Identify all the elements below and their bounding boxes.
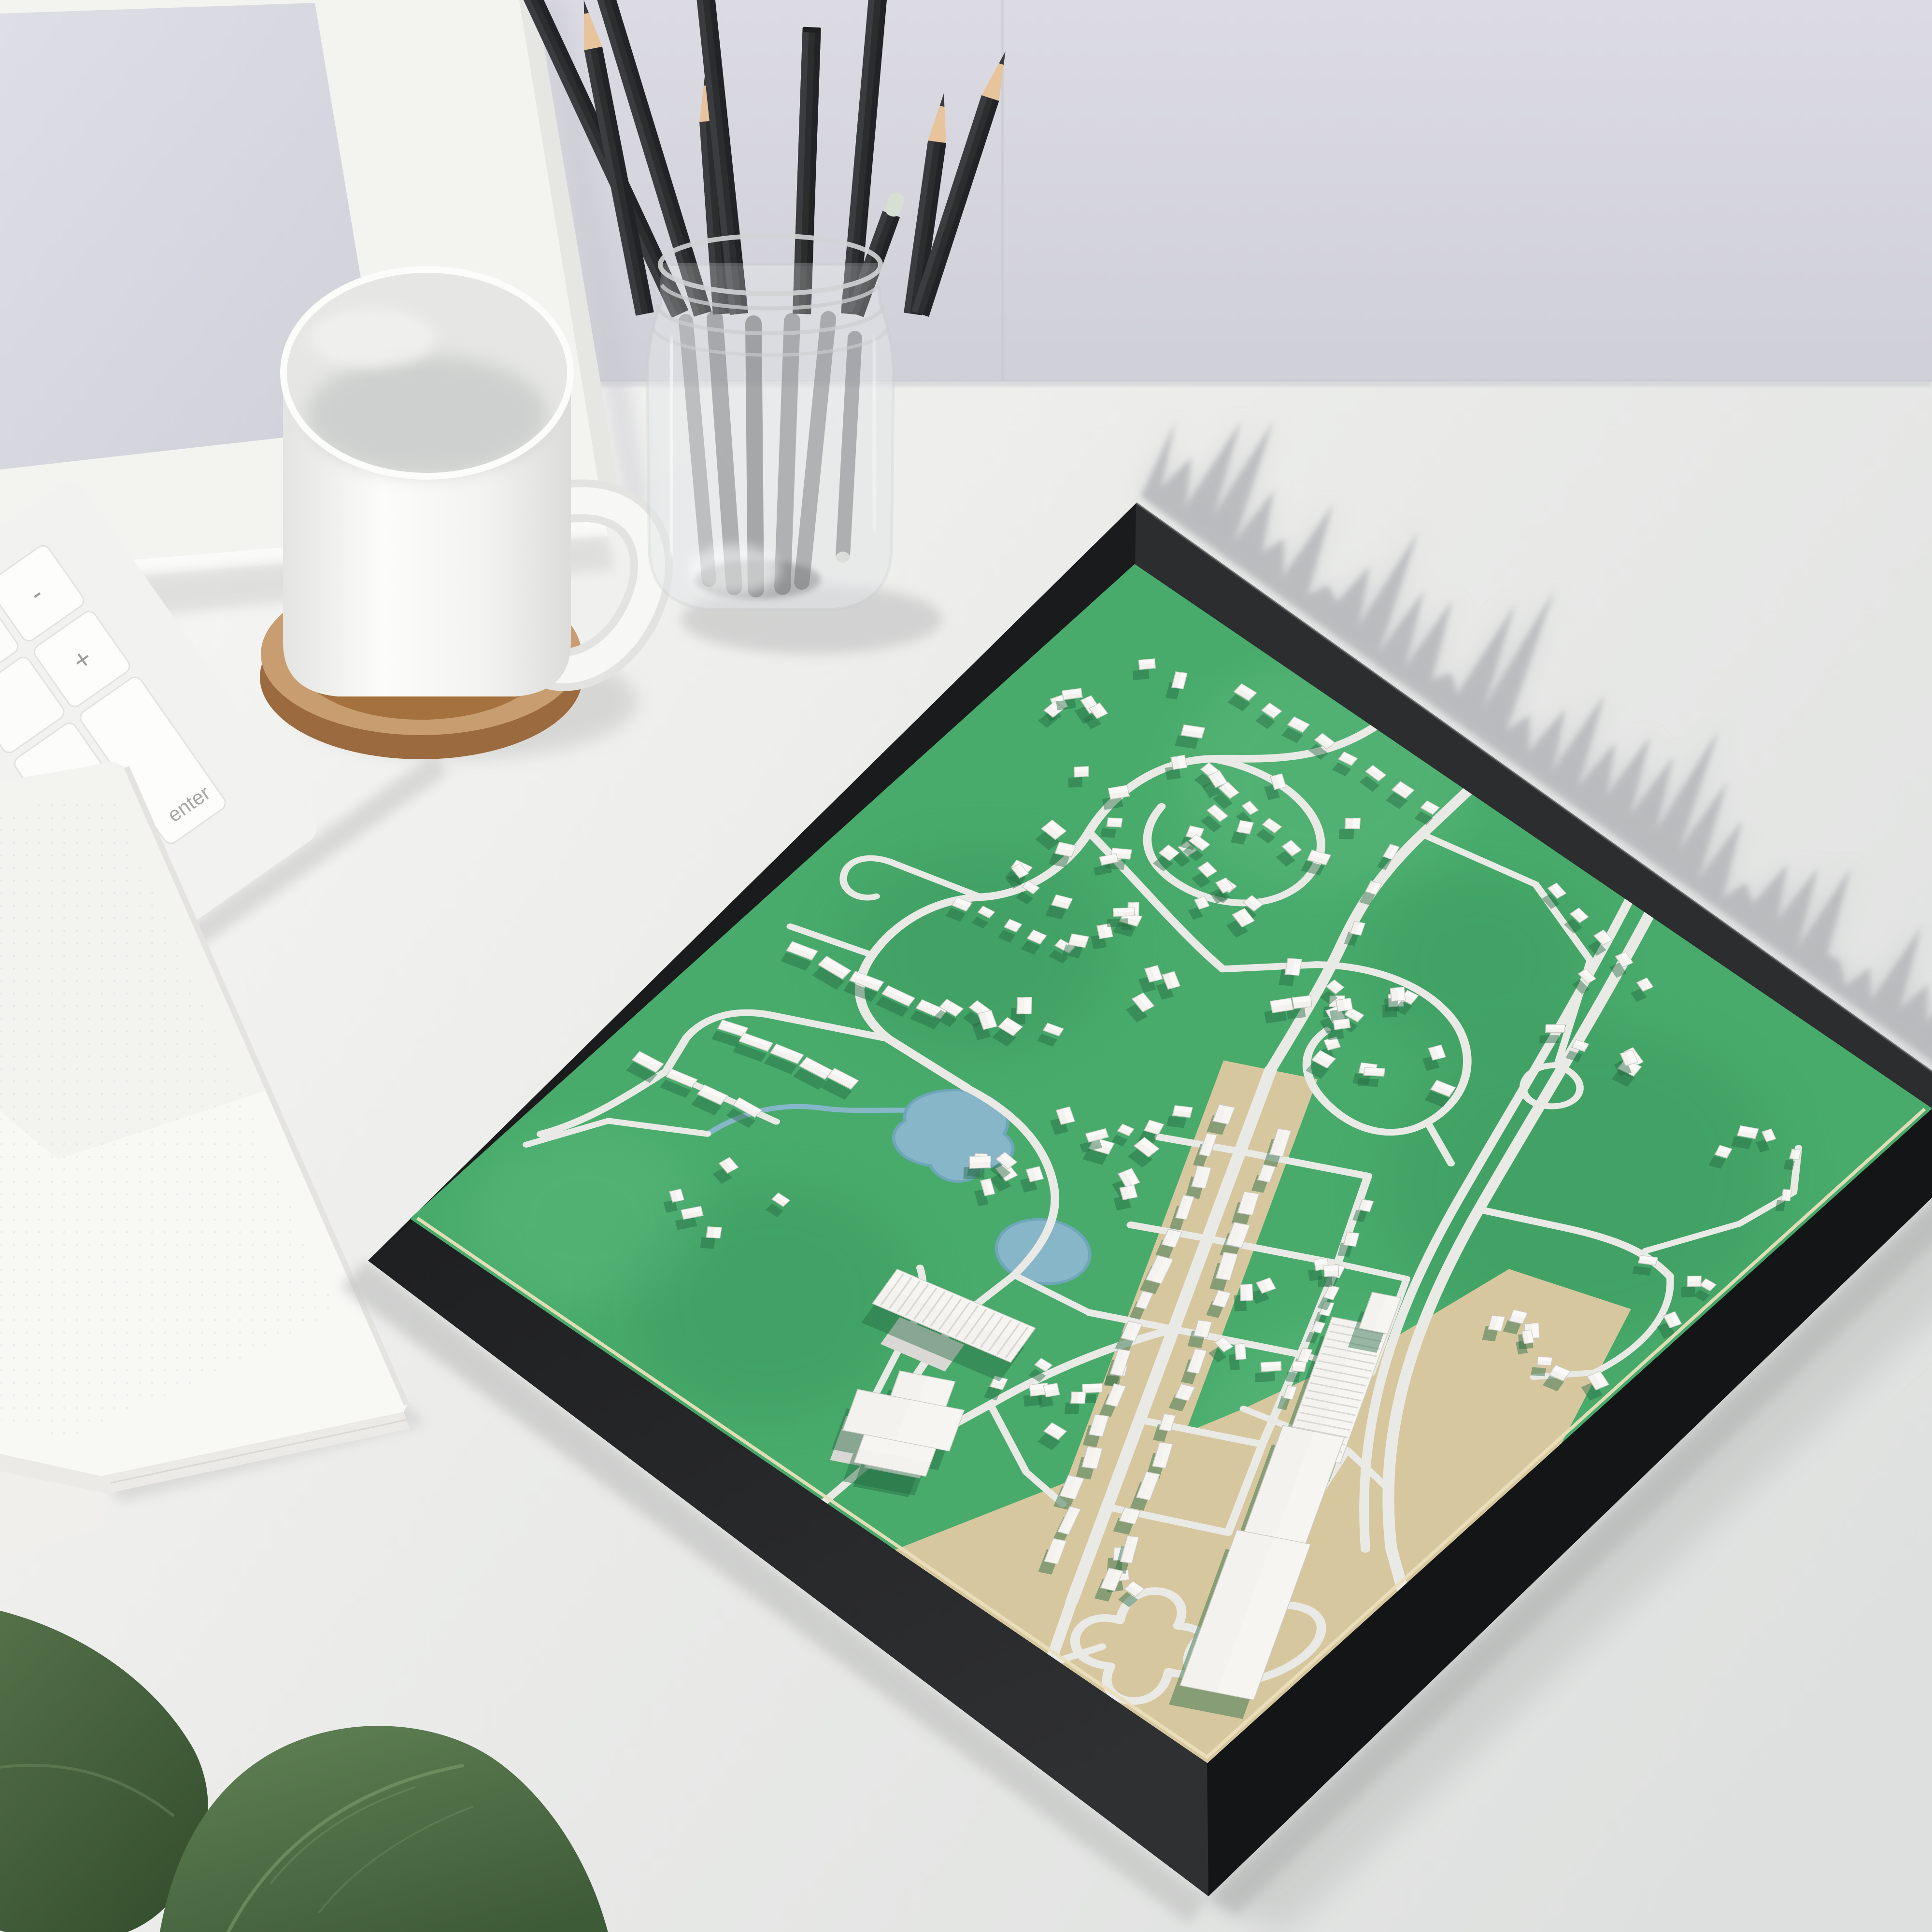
pencil-flat-end [802,27,821,33]
house-shadow [1318,1276,1333,1288]
house-roof [1113,908,1134,912]
house-shadow [1107,918,1128,927]
house-roof [1108,818,1122,823]
house-roof [1074,767,1088,772]
house-shadow [700,1237,715,1249]
house-roof [970,1156,991,1162]
house-shadow [1358,1078,1379,1087]
house-shadow [1531,1367,1546,1377]
house-roof [1352,818,1360,828]
house-roof [1082,1384,1102,1389]
desk-scene: - + enter [0,0,1932,1932]
jar-base-glow [688,545,780,595]
scene-canvas: - + enter [0,0,1932,1932]
house-roof [1324,1265,1338,1271]
house-shadow [1255,1372,1275,1382]
house-shadow [1133,669,1149,680]
house-shadow [1166,1116,1186,1128]
mug-interior-highlight [309,308,435,368]
house-shadow [1101,828,1116,838]
house-shadow [1286,1372,1300,1382]
jar-highlight-left [670,338,672,555]
house-roof [1024,997,1032,1014]
house-shadow [1065,1403,1080,1414]
house-shadow [1681,1287,1695,1297]
house-roof [1546,1024,1565,1028]
house-shadow [1539,1035,1559,1043]
house-roof [1078,1392,1085,1404]
house-roof [1246,1284,1253,1301]
house-shadow [1068,777,1082,788]
house-roof [1397,987,1406,1001]
house-roof [1688,1276,1701,1281]
house-shadow [1339,829,1354,839]
jar-highlight-right [873,338,875,531]
house-shadow [1776,1200,1786,1211]
house-shadow [1327,1029,1344,1040]
